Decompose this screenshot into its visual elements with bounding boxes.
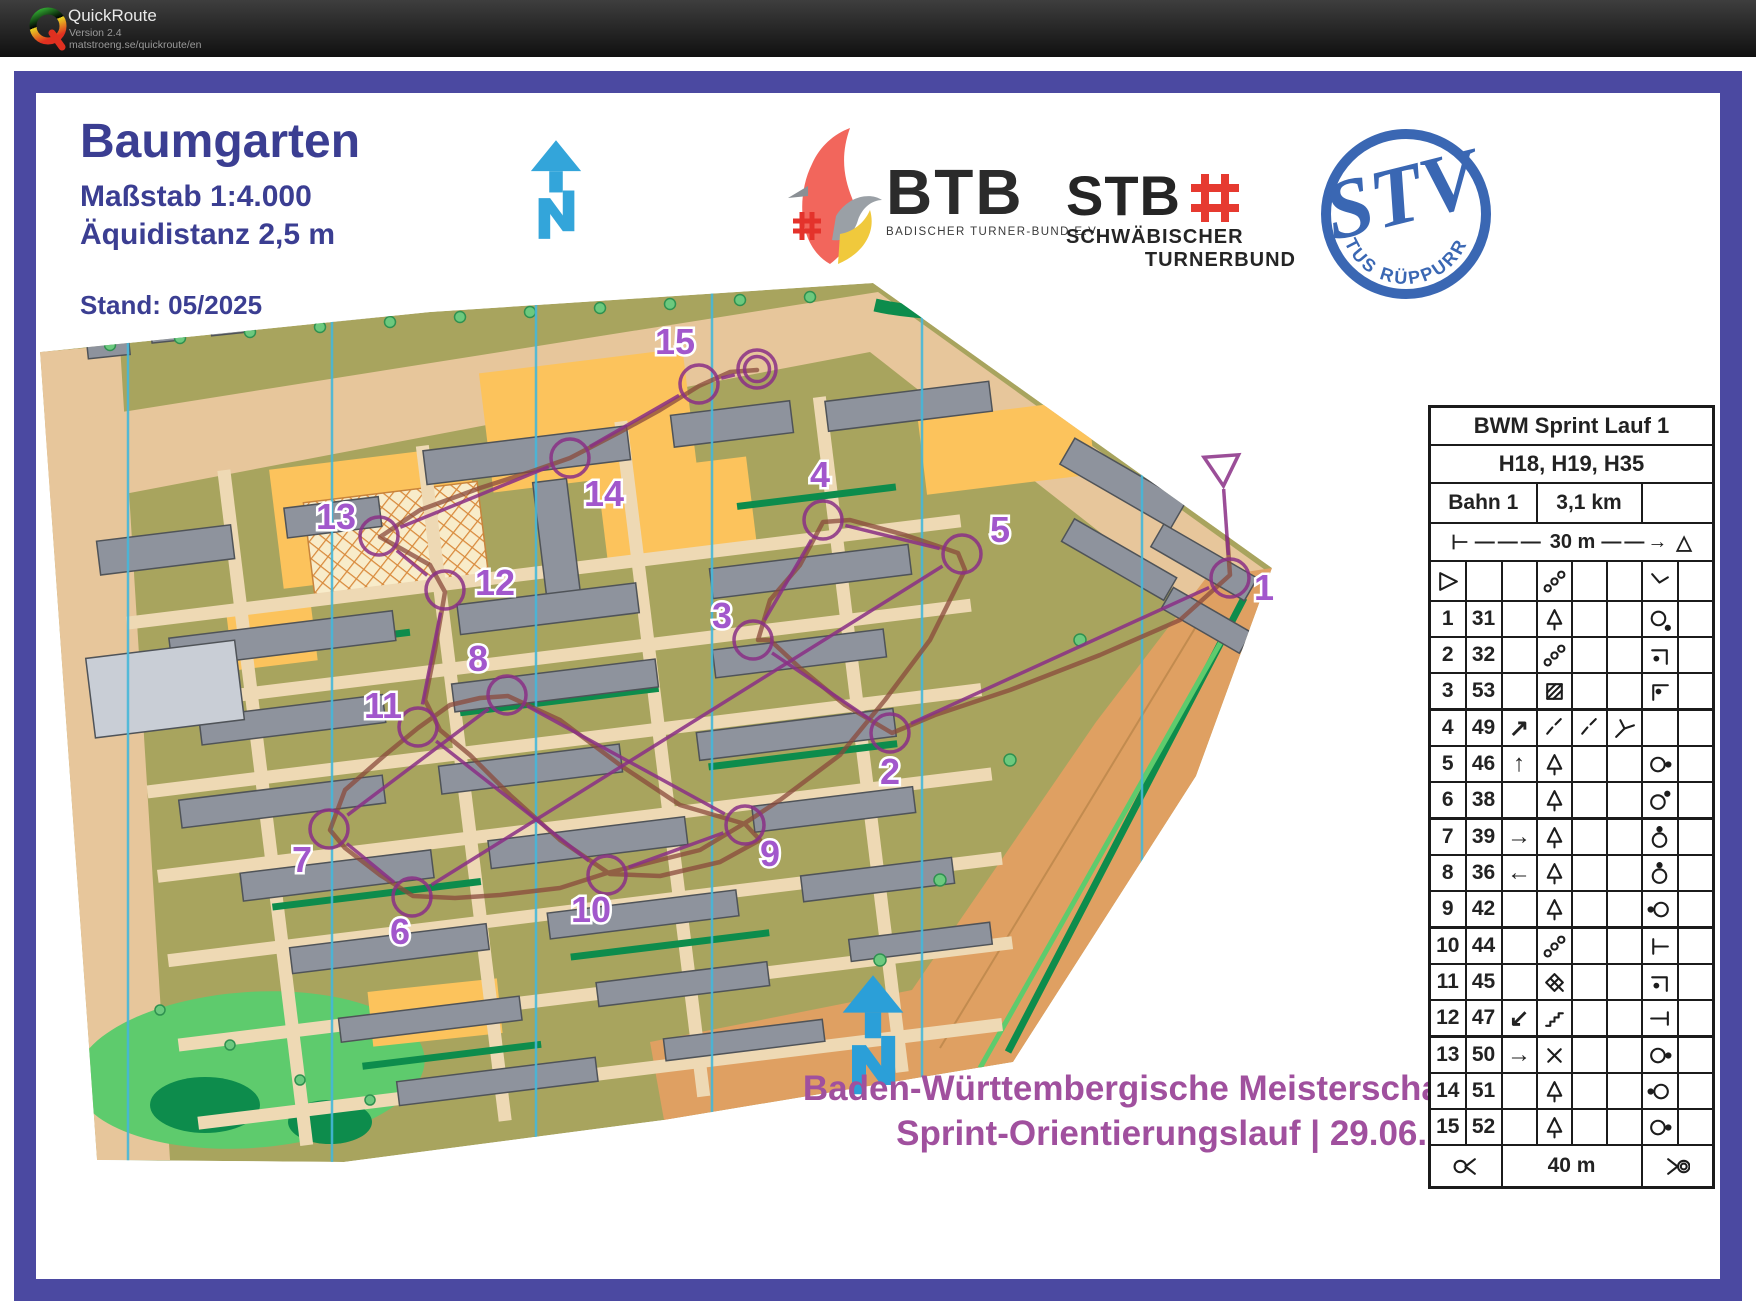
card-cell [1678, 1000, 1714, 1037]
card-cell [1607, 673, 1642, 710]
card-cell [1572, 710, 1607, 747]
app-url: matstroeng.se/quickroute/en [69, 39, 202, 51]
card-cell [1642, 710, 1678, 747]
control-row: 546↑ [1430, 746, 1714, 782]
event-line1: Baden-Württembergische Meisterschaften [500, 1066, 1505, 1111]
control-row: 449↗ [1430, 710, 1714, 747]
tus-rueppurr-logo: STV TUS RÜPPURR [1318, 126, 1494, 307]
card-course-length: 3,1 km [1537, 483, 1642, 523]
card-cell [1678, 1037, 1714, 1074]
card-cell [1537, 1037, 1572, 1074]
card-cell: 13 [1430, 1037, 1466, 1074]
card-cell [1678, 637, 1714, 673]
card-start-distance-row: ⊢——— 30 m ——→△ [1430, 523, 1714, 561]
card-cell [1607, 637, 1642, 673]
stb-line1: SCHWÄBISCHER [1066, 226, 1296, 249]
control-number-label: 2 [880, 751, 900, 792]
card-cell: ↑ [1502, 746, 1537, 782]
control-rows: 131232353449↗546↑638739→836←942104411451… [1430, 561, 1714, 1188]
card-cell: 45 [1466, 964, 1502, 1000]
card-cell: 6 [1430, 782, 1466, 819]
control-number-label: 14 [584, 473, 624, 514]
map-stand-date: Stand: 05/2025 [80, 290, 360, 321]
card-cell [1678, 1073, 1714, 1109]
control-number-label: 6 [390, 911, 410, 952]
card-cell: 50 [1466, 1037, 1502, 1074]
card-cell: 10 [1430, 928, 1466, 965]
card-cell: 2 [1430, 637, 1466, 673]
card-cell [1678, 746, 1714, 782]
card-cell [1678, 855, 1714, 891]
card-cell [1607, 1000, 1642, 1037]
control-row: 1145 [1430, 964, 1714, 1000]
card-cell: 36 [1466, 855, 1502, 891]
card-cell: → [1502, 819, 1537, 856]
stb-abbr: STB [1066, 170, 1181, 222]
card-cell [1502, 637, 1537, 673]
card-cell: 47 [1466, 1000, 1502, 1037]
card-cell [1678, 601, 1714, 637]
control-number-label: 4 [810, 454, 830, 495]
card-cell [1642, 928, 1678, 965]
card-cell: 49 [1466, 710, 1502, 747]
card-cell: 4 [1430, 710, 1466, 747]
card-cell [1537, 1000, 1572, 1037]
card-cell: 32 [1466, 637, 1502, 673]
north-arrow-top [527, 140, 585, 247]
card-cell [1572, 561, 1607, 601]
app-title: QuickRoute [68, 6, 157, 26]
card-course-name: Bahn 1 [1430, 483, 1537, 523]
card-cell: 11 [1430, 964, 1466, 1000]
card-cell [1607, 964, 1642, 1000]
control-number-label: 1 [1254, 567, 1274, 608]
card-cell: ↗ [1502, 710, 1537, 747]
card-cell [1607, 891, 1642, 928]
card-cell [1537, 928, 1572, 965]
card-cell [1607, 561, 1642, 601]
card-cell [1572, 964, 1607, 1000]
control-number-label: 3 [712, 595, 732, 636]
card-cell [1430, 1145, 1502, 1188]
card-cell [1572, 855, 1607, 891]
card-cell [1572, 673, 1607, 710]
card-cell [1572, 1109, 1607, 1145]
card-cell [1572, 891, 1607, 928]
control-row: 836← [1430, 855, 1714, 891]
card-cell [1502, 601, 1537, 637]
card-cell [1537, 637, 1572, 673]
card-cell [1642, 891, 1678, 928]
card-cell: 42 [1466, 891, 1502, 928]
start-row [1430, 561, 1714, 601]
card-cell [1537, 561, 1572, 601]
card-cell [1572, 928, 1607, 965]
card-cell [1572, 819, 1607, 856]
card-cell [1502, 1109, 1537, 1145]
control-number-label: 8 [468, 638, 488, 679]
card-cell [1642, 746, 1678, 782]
card-cell [1502, 782, 1537, 819]
card-cell [1607, 782, 1642, 819]
card-cell: 15 [1430, 1109, 1466, 1145]
card-cell: 46 [1466, 746, 1502, 782]
event-line2: Sprint-Orientierungslauf | 29.06.2025 [500, 1111, 1505, 1156]
card-cell [1642, 819, 1678, 856]
control-number-label: 15 [655, 321, 695, 362]
card-cell [1572, 1037, 1607, 1074]
card-cell [1502, 891, 1537, 928]
stb-turnerkreuz-icon [1189, 172, 1241, 224]
card-cell: ↙ [1502, 1000, 1537, 1037]
card-cell [1642, 782, 1678, 819]
card-cell [1678, 928, 1714, 965]
card-cell [1572, 601, 1607, 637]
map-equidistance: Äquidistanz 2,5 m [80, 218, 360, 252]
card-cell: 38 [1466, 782, 1502, 819]
card-cell [1537, 673, 1572, 710]
card-cell [1572, 1073, 1607, 1109]
map-scale: Maßstab 1:4.000 [80, 180, 360, 214]
card-cell [1537, 891, 1572, 928]
map-title: Baumgarten [80, 116, 360, 168]
map-artwork [40, 225, 1316, 1170]
card-cell [1502, 561, 1537, 601]
card-cell [1678, 561, 1714, 601]
card-cell [1642, 637, 1678, 673]
control-number-label: 9 [760, 833, 780, 874]
card-cell [1502, 928, 1537, 965]
card-cell [1607, 819, 1642, 856]
card-cell [1537, 1073, 1572, 1109]
card-cell [1502, 673, 1537, 710]
control-number-label: 7 [292, 839, 312, 880]
card-cell [1572, 637, 1607, 673]
card-cell [1502, 964, 1537, 1000]
card-cell [1537, 710, 1572, 747]
btb-flame-icon [778, 126, 890, 266]
card-cell: 14 [1430, 1073, 1466, 1109]
card-cell [1466, 561, 1502, 601]
control-row: 1350→ [1430, 1037, 1714, 1074]
control-row: 1451 [1430, 1073, 1714, 1109]
card-cell [1642, 1109, 1678, 1145]
control-row: 353 [1430, 673, 1714, 710]
card-cell: 3 [1430, 673, 1466, 710]
card-cell [1537, 746, 1572, 782]
card-cell: 31 [1466, 601, 1502, 637]
control-number-label: 11 [364, 685, 402, 726]
card-cell [1607, 601, 1642, 637]
btb-logo: BTB BADISCHER TURNER-BUND E.V. [778, 126, 890, 271]
control-number-label: 5 [990, 509, 1010, 550]
card-cell [1537, 1109, 1572, 1145]
stb-logo: STB SCHWÄBISCHER TURNERBUND [1066, 170, 1296, 272]
event-text: Baden-Württembergische Meisterschaften S… [500, 1066, 1505, 1156]
control-row: 638 [1430, 782, 1714, 819]
card-cell [1607, 1073, 1642, 1109]
start-distance-value: 30 m [1550, 531, 1596, 554]
card-cell [1502, 1073, 1537, 1109]
card-cell [1642, 561, 1678, 601]
card-cell [1537, 964, 1572, 1000]
control-row: 739→ [1430, 819, 1714, 856]
card-cell: 1 [1430, 601, 1466, 637]
card-cell [1678, 891, 1714, 928]
card-cell: → [1502, 1037, 1537, 1074]
control-row: 1247↙ [1430, 1000, 1714, 1037]
tus-monogram: STV [1318, 130, 1493, 259]
card-cell: 39 [1466, 819, 1502, 856]
app-version: Version 2.4 [69, 27, 122, 39]
card-cell: 7 [1430, 819, 1466, 856]
card-cell [1642, 673, 1678, 710]
card-cell: 9 [1430, 891, 1466, 928]
map-header: Baumgarten Maßstab 1:4.000 Äquidistanz 2… [80, 116, 360, 321]
control-row: 131 [1430, 601, 1714, 637]
card-cell [1642, 964, 1678, 1000]
card-cell [1430, 561, 1466, 601]
card-cell [1537, 782, 1572, 819]
card-title: BWM Sprint Lauf 1 [1430, 407, 1714, 446]
card-cell [1642, 601, 1678, 637]
card-cell [1607, 928, 1642, 965]
card-cell: 5 [1430, 746, 1466, 782]
card-cell [1642, 1073, 1678, 1109]
card-cell [1537, 601, 1572, 637]
control-row: 232 [1430, 637, 1714, 673]
control-row: 1044 [1430, 928, 1714, 965]
card-cell: 44 [1466, 928, 1502, 965]
control-description-card: BWM Sprint Lauf 1 H18, H19, H35 Bahn 1 3… [1428, 405, 1715, 1189]
card-cell [1642, 1000, 1678, 1037]
control-row: 942 [1430, 891, 1714, 928]
card-cell: ← [1502, 855, 1537, 891]
card-cell [1607, 710, 1642, 747]
card-cell [1642, 1145, 1714, 1188]
card-cell [1678, 819, 1714, 856]
card-cell [1607, 1037, 1642, 1074]
control-number-label: 12 [475, 562, 515, 603]
card-cell: 8 [1430, 855, 1466, 891]
card-cell [1642, 1037, 1678, 1074]
card-cell [1607, 746, 1642, 782]
card-cell [1537, 819, 1572, 856]
card-cell [1572, 746, 1607, 782]
card-cell [1572, 782, 1607, 819]
card-cell: 12 [1430, 1000, 1466, 1037]
card-cell [1678, 964, 1714, 1000]
card-cell: 51 [1466, 1073, 1502, 1109]
card-cell [1607, 1109, 1642, 1145]
card-cell: 52 [1466, 1109, 1502, 1145]
control-number-label: 13 [316, 496, 356, 537]
card-cell [1678, 673, 1714, 710]
quickroute-logo-icon [26, 5, 72, 51]
control-row: 1552 [1430, 1109, 1714, 1145]
card-cell: 53 [1466, 673, 1502, 710]
card-cell [1678, 710, 1714, 747]
finish-row: 40 m [1430, 1145, 1714, 1188]
control-number-label: 10 [571, 889, 611, 930]
card-classes: H18, H19, H35 [1430, 445, 1714, 483]
card-cell [1572, 1000, 1607, 1037]
card-cell [1537, 855, 1572, 891]
titlebar: QuickRoute Version 2.4 matstroeng.se/qui… [0, 0, 1756, 57]
card-cell [1607, 855, 1642, 891]
card-cell [1678, 782, 1714, 819]
card-course-extra [1642, 483, 1714, 523]
card-cell [1678, 1109, 1714, 1145]
card-cell [1642, 855, 1678, 891]
start-distance-line: ⊢——— 30 m ——→△ [1431, 530, 1712, 555]
stb-line2: TURNERBUND [1066, 249, 1296, 272]
card-cell: 40 m [1502, 1145, 1642, 1188]
